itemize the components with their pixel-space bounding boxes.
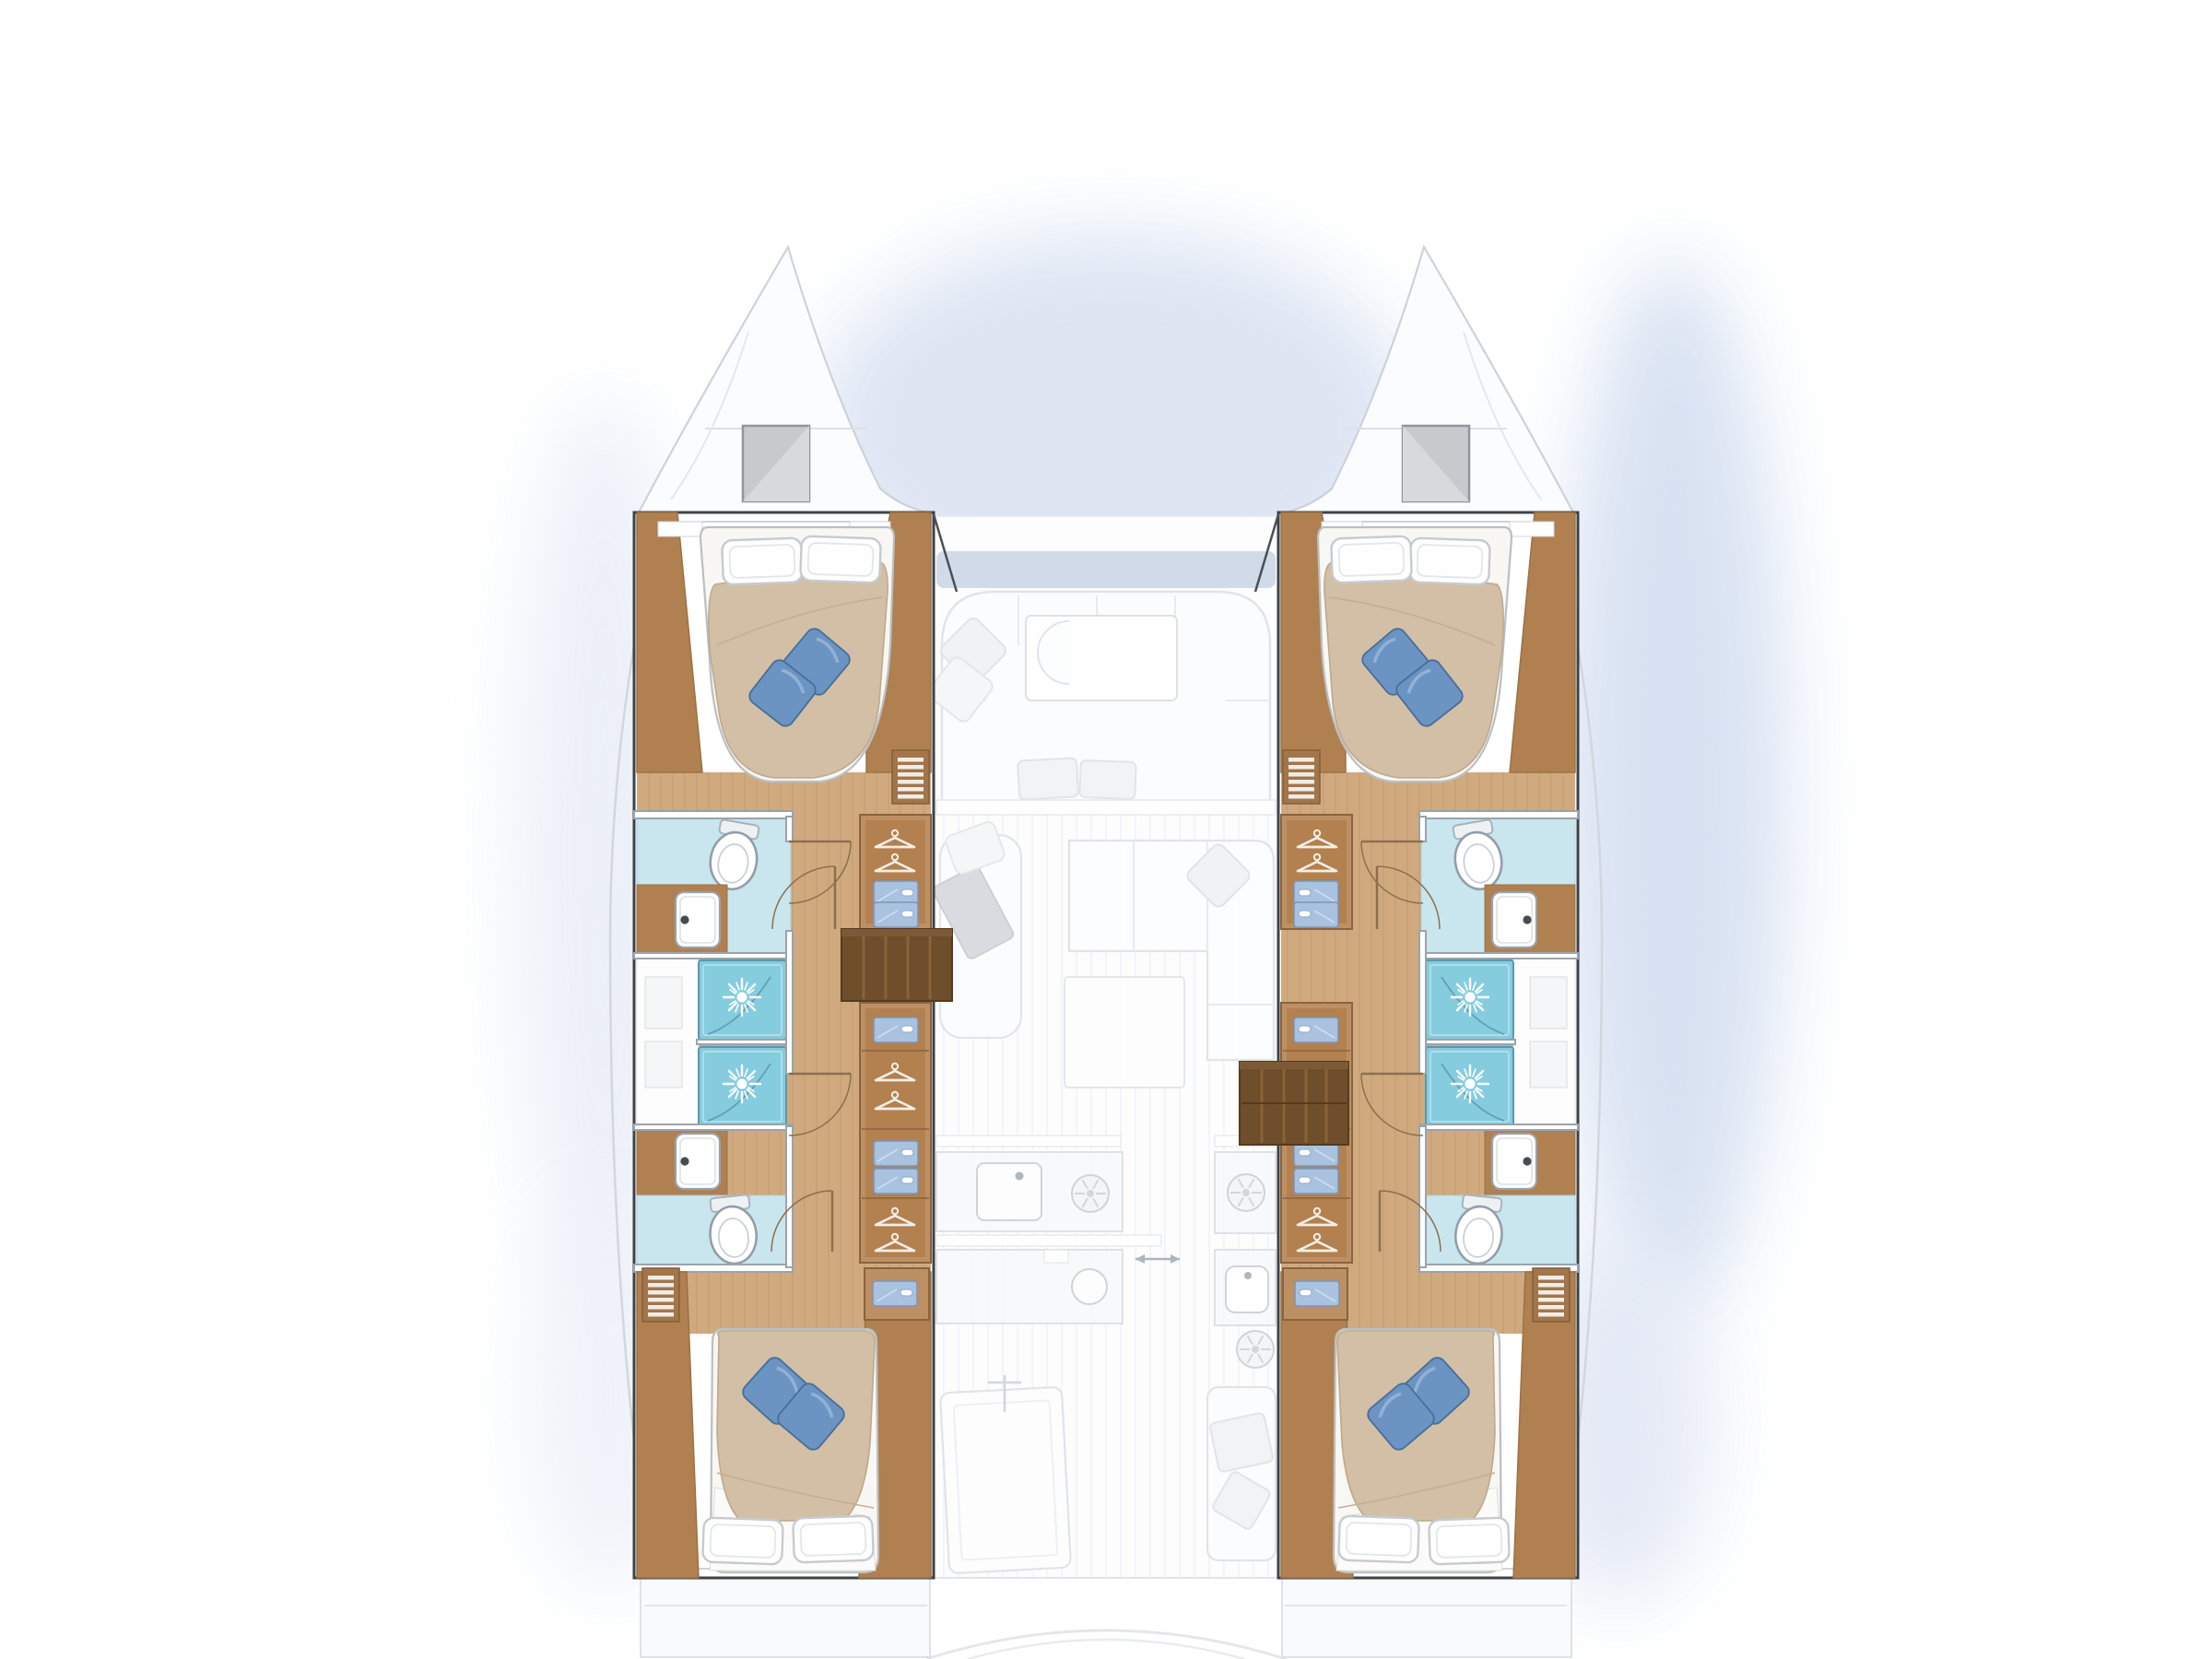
cockpit-table <box>940 1387 1071 1574</box>
cushion <box>1018 758 1078 799</box>
step-band <box>936 800 1276 815</box>
starboard-companionway-steps <box>1240 1062 1348 1145</box>
rect-sink-icon <box>977 1163 1041 1220</box>
cushion <box>1209 1412 1274 1472</box>
partition <box>936 1135 1121 1147</box>
deck-plan-svg <box>0 0 2212 1659</box>
faucet-dot-icon <box>1016 1172 1024 1181</box>
counter-fitting <box>1044 1250 1068 1263</box>
bench-seat <box>1207 1387 1276 1560</box>
counter-edge <box>936 1235 1161 1246</box>
faucet-dot-icon <box>1244 1272 1252 1279</box>
center-deck <box>925 516 1286 1659</box>
cushion <box>1079 760 1135 799</box>
transom-steps-icon <box>968 1640 1244 1659</box>
forward-cockpit <box>925 592 1276 815</box>
starboard-hull <box>1255 247 1602 1657</box>
saloon-table <box>1065 977 1184 1088</box>
catamaran-floor-plan <box>0 0 2212 1659</box>
saloon-window-band <box>936 551 1276 588</box>
port-companionway-steps <box>841 929 952 1001</box>
round-sink-icon <box>1072 1269 1107 1304</box>
